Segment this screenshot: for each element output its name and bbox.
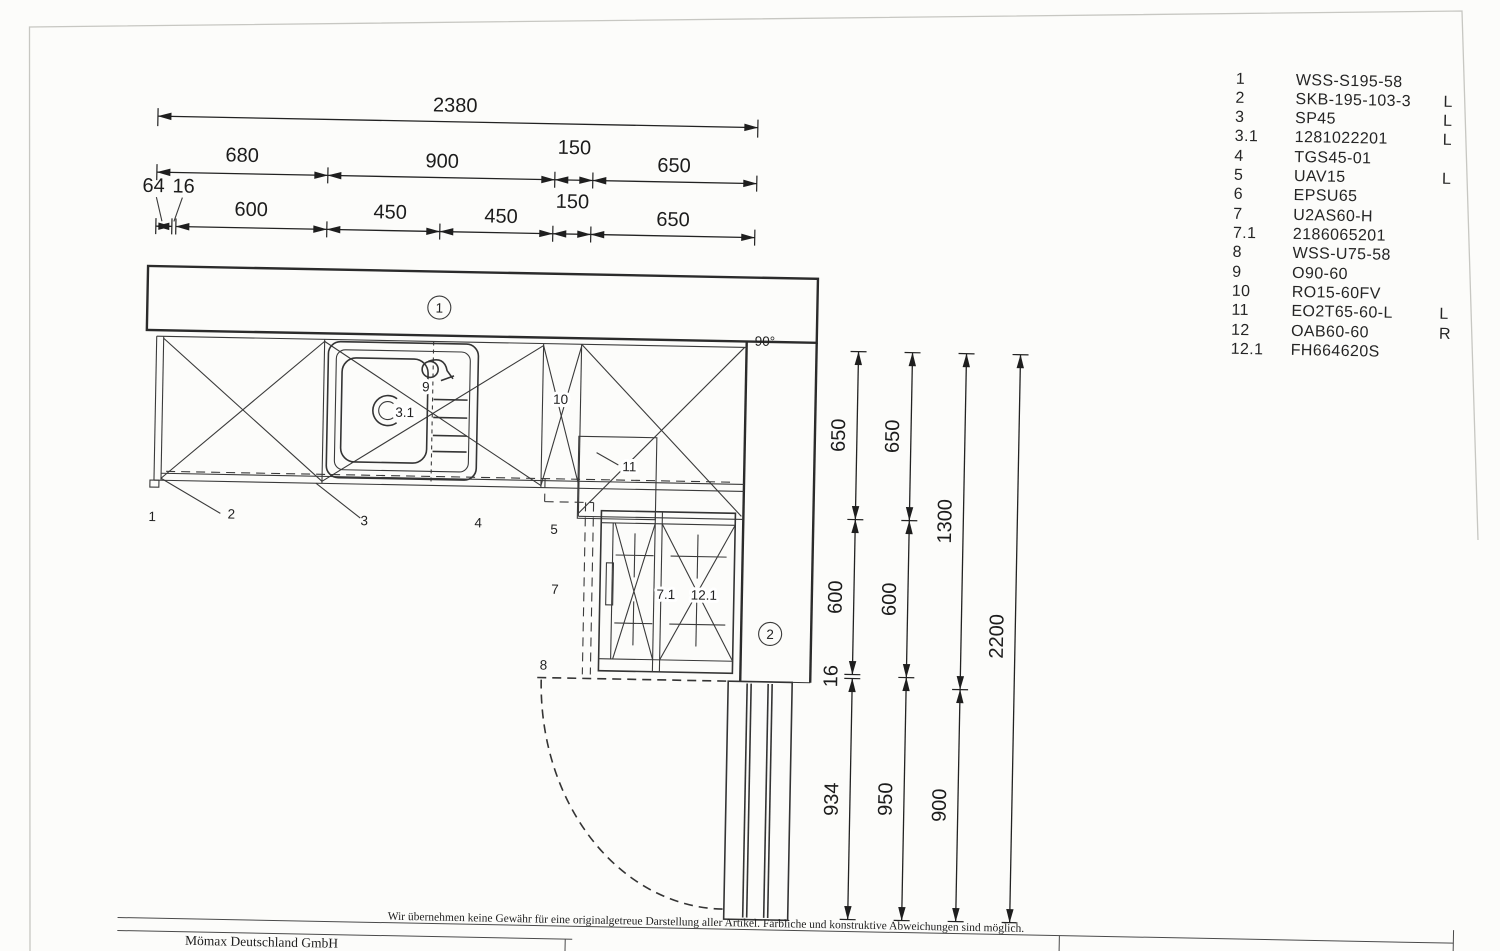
part-side: R [1439, 326, 1451, 343]
vdim-1300: 1300 [934, 499, 957, 544]
item-label-7: 7 [551, 582, 559, 597]
part-num: 8 [1232, 244, 1242, 261]
dim-16: 16 [172, 175, 195, 197]
dim-total-width: 2380 [433, 94, 478, 117]
item-label-4: 4 [474, 515, 482, 530]
item-label-5: 5 [550, 522, 558, 537]
part-side: L [1442, 171, 1452, 188]
floor-plan: 1 90° 2 [136, 266, 818, 921]
part-code: O90-60 [1292, 265, 1348, 283]
item-label-12-1: 12.1 [691, 587, 718, 603]
item-label-1: 1 [148, 509, 156, 524]
item-label-9: 9 [422, 379, 430, 394]
part-code: FH664620S [1291, 342, 1380, 361]
part-num: 7 [1233, 206, 1243, 223]
dim-450-b: 450 [484, 205, 518, 228]
part-num: 4 [1234, 148, 1244, 165]
parts-row: 1WSS-S195-58 2SKB-195-103-3L 3SP45L 3.11… [1231, 71, 1456, 362]
part-side: L [1439, 306, 1449, 323]
angle-note: 90° [755, 334, 776, 349]
part-num: 12.1 [1231, 341, 1264, 359]
vdim-650-b: 650 [882, 419, 905, 453]
part-num: 3.1 [1235, 128, 1259, 145]
part-side: L [1443, 113, 1453, 130]
part-code: TGS45-01 [1294, 149, 1371, 167]
item-label-10: 10 [553, 392, 568, 407]
worktop-dashed-edge [537, 678, 728, 682]
vdim-600-a: 600 [825, 580, 848, 614]
part-num: 6 [1233, 186, 1243, 203]
part-code: WSS-U75-58 [1292, 245, 1391, 264]
plan-drawing-svg: 2380 680 900 150 650 64 16 [0, 0, 1500, 951]
faucet-icon [422, 361, 438, 377]
part-code: SKB-195-103-3 [1295, 91, 1411, 110]
item-label-2: 2 [227, 507, 235, 522]
item-label-3: 3 [360, 513, 368, 528]
part-code: UAV15 [1294, 168, 1346, 186]
dim-650-lower: 650 [656, 209, 690, 232]
bubble-1-label: 1 [435, 300, 443, 315]
footer-title-block: Wir übernehmen keine Gewähr für eine ori… [117, 904, 1454, 951]
top-dimension-rows: 2380 680 900 150 650 64 16 [142, 89, 759, 246]
dim-600: 600 [234, 199, 268, 222]
item-label-3-1: 3.1 [395, 405, 414, 420]
part-code: EPSU65 [1293, 187, 1357, 205]
disclaimer-text: Wir übernehmen keine Gewähr für eine ori… [388, 911, 1025, 935]
part-num: 5 [1234, 167, 1244, 184]
part-num: 7.1 [1233, 225, 1257, 242]
part-code: 2186065201 [1293, 226, 1386, 245]
vdim-900: 900 [929, 788, 952, 822]
dim-650-upper: 650 [657, 155, 691, 178]
door-swing-arc [537, 680, 727, 910]
part-code: WSS-S195-58 [1296, 72, 1403, 91]
part-num: 9 [1232, 264, 1242, 281]
dishwasher-symbol [373, 395, 398, 425]
scanned-kitchen-plan-sheet: 2380 680 900 150 650 64 16 [0, 0, 1500, 951]
parts-list: 1WSS-S195-58 2SKB-195-103-3L 3SP45L 3.11… [1231, 71, 1456, 362]
vdim-2200: 2200 [986, 614, 1009, 659]
part-code: 1281022201 [1295, 129, 1388, 148]
dim-680: 680 [225, 144, 259, 167]
item-label-7-1: 7.1 [656, 587, 675, 602]
vdim-16: 16 [820, 665, 842, 688]
part-code: OAB60-60 [1291, 323, 1369, 341]
vdim-950: 950 [875, 782, 898, 816]
part-code: EO2T65-60-L [1291, 303, 1393, 322]
part-num: 3 [1235, 109, 1245, 126]
part-num: 10 [1232, 283, 1251, 300]
sink-bowl [340, 358, 428, 464]
part-num: 12 [1231, 322, 1250, 339]
part-num: 1 [1236, 71, 1246, 88]
part-num: 11 [1231, 302, 1249, 319]
dim-150-upper: 150 [558, 137, 592, 160]
sink-drainer-ribs [433, 399, 468, 452]
item-label-8: 8 [540, 658, 548, 673]
part-num: 2 [1235, 90, 1245, 107]
item-label-11: 11 [622, 459, 636, 474]
dim-900: 900 [425, 150, 459, 173]
part-code: SP45 [1295, 110, 1336, 128]
corner-oven-outline [577, 436, 657, 519]
part-code: U2AS60-H [1293, 207, 1373, 226]
vdim-650-a: 650 [828, 418, 851, 452]
part-side: L [1443, 94, 1453, 111]
bubble-2-label: 2 [766, 627, 774, 642]
part-side: L [1443, 132, 1453, 149]
wall-shelf-band [147, 266, 818, 343]
dim-150-lower: 150 [555, 191, 589, 214]
dim-64: 64 [142, 175, 165, 197]
door-leaf [724, 681, 793, 920]
vdim-934: 934 [821, 782, 844, 816]
vdim-600-b: 600 [878, 582, 901, 616]
right-dimension-columns: 650 600 16 934 650 600 950 1300 900 2200 [816, 351, 1029, 923]
company-name: Mömax Deutschland GmbH [185, 933, 338, 951]
part-code: RO15-60FV [1292, 284, 1381, 303]
dim-450-a: 450 [373, 201, 407, 224]
